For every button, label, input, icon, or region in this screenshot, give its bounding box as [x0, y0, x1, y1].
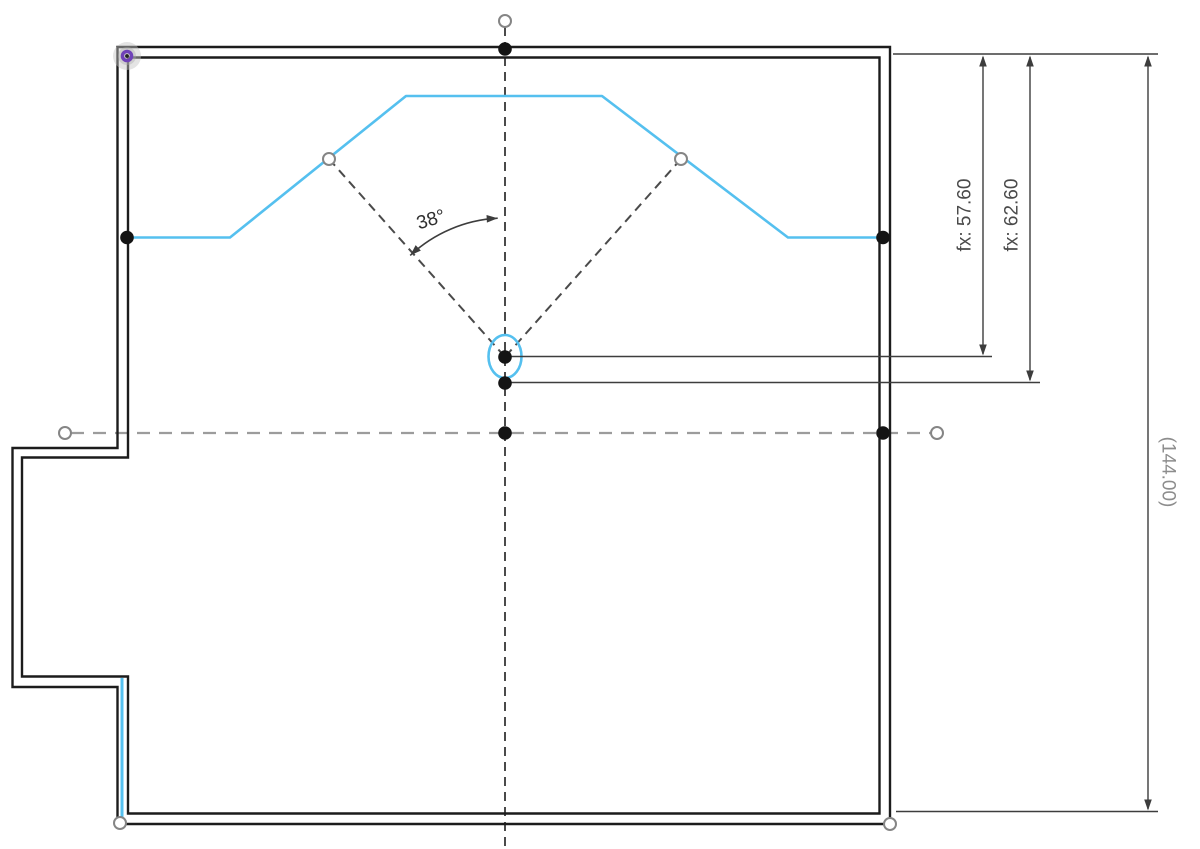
wall-outline: [13, 47, 891, 824]
angle-arrowhead: [487, 214, 498, 222]
sketch-point-filled[interactable]: [498, 426, 512, 440]
wall-outline-outer[interactable]: [13, 47, 891, 824]
dimension-arrowhead: [979, 56, 987, 67]
sketch-point-open[interactable]: [114, 817, 126, 829]
angle-dimension-label[interactable]: 38°: [414, 206, 448, 234]
sketch-points: [59, 15, 943, 830]
sketch-point-open[interactable]: [931, 427, 943, 439]
dimension-arrowhead: [1144, 800, 1152, 811]
sketch-point-open[interactable]: [323, 153, 335, 165]
construction-diagonal-right[interactable]: [505, 159, 681, 357]
sketch-canvas[interactable]: fx: 57.60fx: 62.60(144.00)38°: [0, 0, 1200, 849]
cad-canvas: fx: 57.60fx: 62.60(144.00)38°: [0, 0, 1200, 849]
origin-center-dot: [125, 54, 129, 58]
sketch-point-open[interactable]: [499, 15, 511, 27]
dimension-label-57-60[interactable]: fx: 57.60: [955, 179, 976, 252]
sketch-point-filled[interactable]: [876, 231, 890, 245]
sketch-point-filled[interactable]: [498, 376, 512, 390]
sketch-point-filled[interactable]: [120, 231, 134, 245]
sketch-point-open[interactable]: [59, 427, 71, 439]
dimension-angle-38[interactable]: 38°: [408, 206, 498, 258]
sketch-point-filled[interactable]: [498, 350, 512, 364]
dimension-arrowhead: [1144, 56, 1152, 67]
sketch-geometry: [122, 96, 881, 822]
dimension-arrowhead: [1026, 371, 1034, 382]
wall-outline-inner[interactable]: [22, 58, 880, 814]
origin-marker[interactable]: [113, 42, 141, 70]
sketch-point-open[interactable]: [884, 818, 896, 830]
dimension-arrowhead: [979, 345, 987, 356]
dimension-label-62-60[interactable]: fx: 62.60: [1002, 179, 1023, 252]
dimension-57-60[interactable]: fx: 57.60: [955, 56, 987, 356]
dimension-144-00[interactable]: (144.00): [1144, 56, 1178, 811]
dimension-arrowhead: [1026, 56, 1034, 67]
sketch-point-open[interactable]: [675, 153, 687, 165]
sketch-point-filled[interactable]: [876, 426, 890, 440]
sketch-point-filled[interactable]: [498, 42, 512, 56]
construction-diagonal-left[interactable]: [329, 159, 505, 357]
dimension-label-144-00[interactable]: (144.00): [1158, 437, 1179, 508]
dimension-62-60[interactable]: fx: 62.60: [1002, 56, 1034, 382]
